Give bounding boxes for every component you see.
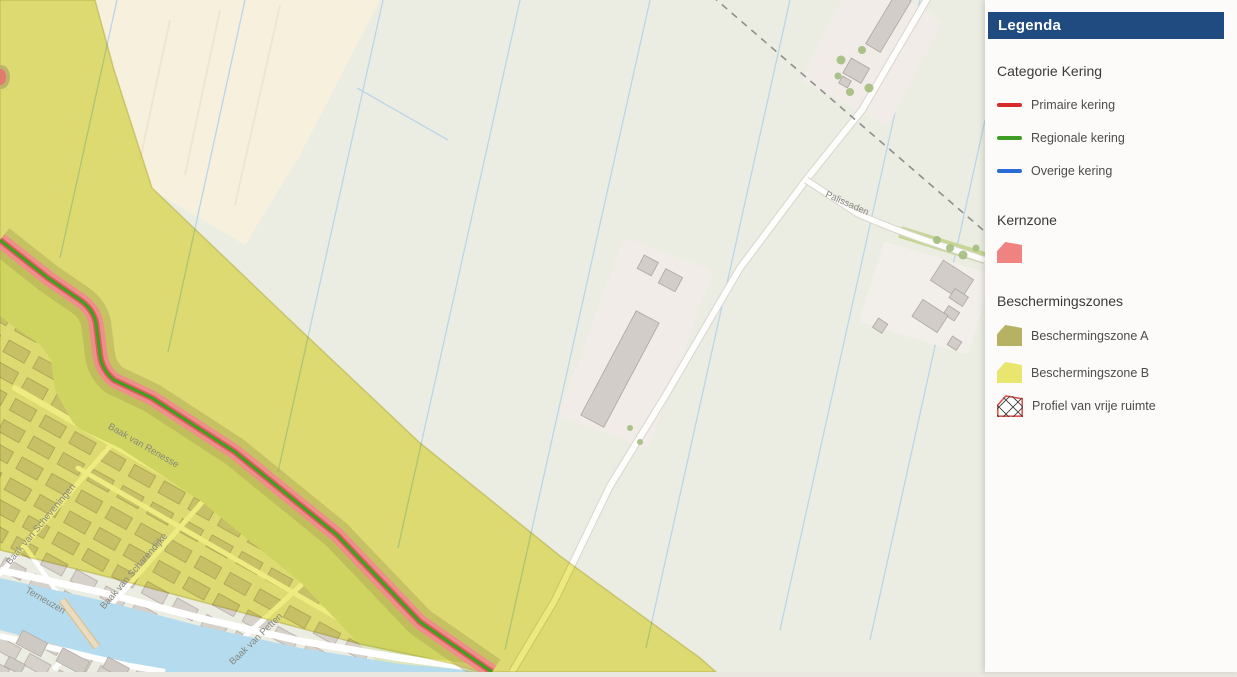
primaire-kering-line-swatch: [997, 103, 1022, 107]
legend-item-profiel-vrije-ruimte: Profiel van vrije ruimte: [997, 395, 1221, 417]
legend-body: Categorie Kering Primaire kering Regiona…: [985, 63, 1237, 417]
legend-section-beschermingszones: Beschermingszones: [997, 293, 1221, 309]
beschermingszone-b-polygon-swatch: [997, 362, 1022, 383]
overige-kering-line-swatch: [997, 169, 1022, 173]
legend-item-label: Overige kering: [1031, 164, 1112, 178]
profiel-vrije-ruimte-hatched-swatch: [997, 395, 1023, 417]
map-canvas[interactable]: Palissaden Baak van Renesse Baak van Sch…: [0, 0, 985, 672]
legend-item-kernzone: [997, 242, 1221, 263]
legend-section-kernzone: Kernzone: [997, 212, 1221, 228]
legend-item-primaire-kering: Primaire kering: [997, 98, 1221, 112]
legend-item-beschermingszone-b: Beschermingszone B: [997, 362, 1221, 383]
legend-header: Legenda: [988, 12, 1224, 39]
legend-item-regionale-kering: Regionale kering: [997, 131, 1221, 145]
legend-item-label: Regionale kering: [1031, 131, 1125, 145]
beschermingszone-a-polygon-swatch: [997, 325, 1022, 346]
kernzone-polygon-swatch: [997, 242, 1022, 263]
kernzone-fragment: [0, 67, 8, 87]
legend-title: Legenda: [998, 17, 1061, 34]
legend-item-label: Beschermingszone A: [1031, 329, 1148, 343]
legend-item-beschermingszone-a: Beschermingszone A: [997, 325, 1221, 346]
legend-panel: Legenda Categorie Kering Primaire kering…: [985, 0, 1237, 672]
legend-item-overige-kering: Overige kering: [997, 164, 1221, 178]
legend-item-label: Beschermingszone B: [1031, 366, 1149, 380]
regionale-kering-line-swatch: [997, 136, 1022, 140]
legend-section-categorie-kering: Categorie Kering: [997, 63, 1221, 79]
legend-item-label: Primaire kering: [1031, 98, 1115, 112]
legend-item-label: Profiel van vrije ruimte: [1032, 399, 1156, 413]
